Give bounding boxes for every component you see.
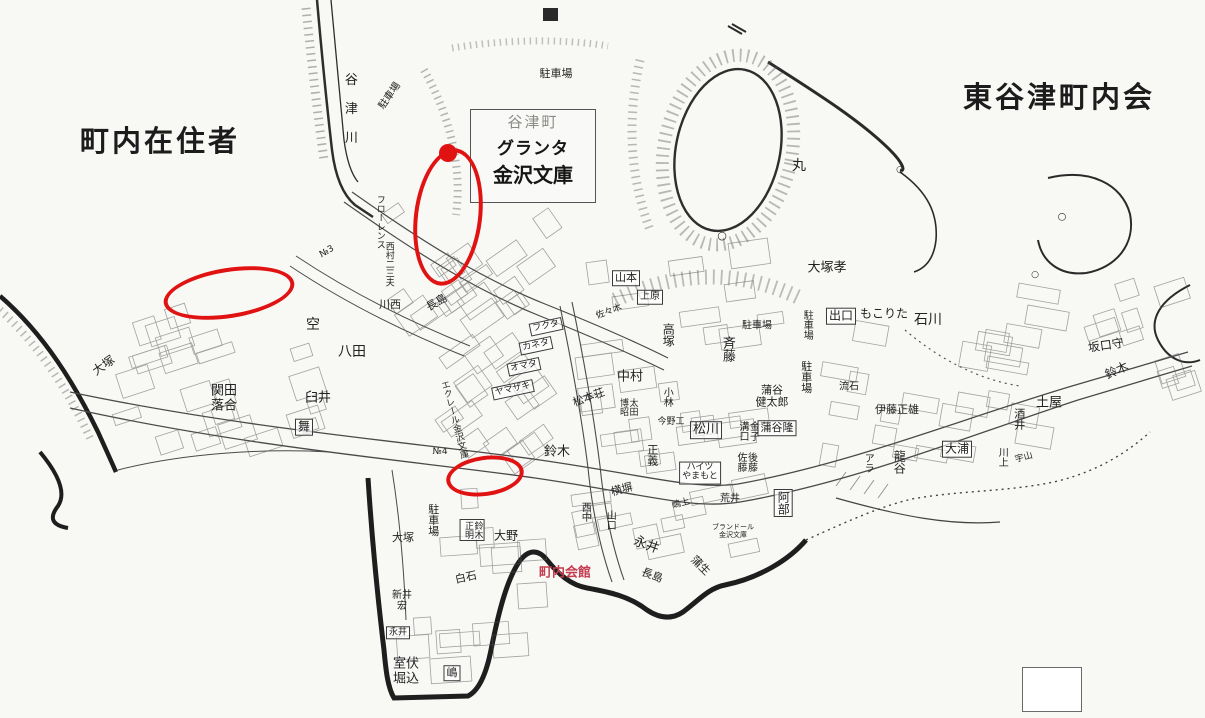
parcel-outline xyxy=(829,401,859,419)
landmark-name-line2: 金沢文庫 xyxy=(471,159,595,188)
parcel-outline xyxy=(1017,283,1061,304)
parcel-outline xyxy=(484,333,524,370)
parcel-outline xyxy=(290,343,313,361)
parcel-outline xyxy=(533,208,562,239)
parcel-outline xyxy=(494,276,524,304)
parcel-outline xyxy=(440,535,478,556)
parcel-outline xyxy=(1154,277,1190,307)
parcel-outline xyxy=(439,334,480,368)
parcel-outline xyxy=(461,488,479,509)
parcel-outline xyxy=(517,582,548,609)
parcel-outline xyxy=(155,327,194,356)
parcel-outline xyxy=(719,324,762,350)
parcel-outline xyxy=(396,634,430,659)
title-residents-in-town: 町内在住者 xyxy=(80,118,240,160)
parcel-outline xyxy=(757,311,784,326)
parcel-outline xyxy=(901,393,939,414)
parcel-outline xyxy=(196,342,235,364)
parcel-outline xyxy=(286,405,325,438)
parcel-outline xyxy=(413,617,431,635)
parcel-outline xyxy=(940,441,976,462)
parcel-outline xyxy=(191,427,221,451)
parcel-outline xyxy=(435,406,463,432)
parcel-outline xyxy=(517,248,556,284)
parcel-outline xyxy=(430,656,472,684)
parcel-outline xyxy=(475,528,494,549)
parcel-outline xyxy=(492,633,529,658)
parcel-outline xyxy=(633,524,661,549)
parcel-outline xyxy=(1004,324,1042,349)
parcel-outline xyxy=(112,407,141,426)
parcel-outline xyxy=(847,371,869,394)
parcel-outline xyxy=(410,295,450,330)
parcel-outline xyxy=(672,496,706,520)
parcel-outline xyxy=(129,346,168,369)
parcel-outline xyxy=(728,538,760,557)
parcel-outline xyxy=(629,417,652,442)
parcel-outline xyxy=(703,325,729,345)
parcel-outline xyxy=(496,290,525,319)
parcel-outline xyxy=(289,367,327,401)
parcel-outline xyxy=(307,398,326,414)
parcel-outline xyxy=(479,542,521,566)
parcel-outline xyxy=(1115,278,1140,301)
scanned-neighborhood-map: 町内在住者 東谷津町内会 谷津町 グランタ 金沢文庫 谷津川駐車場駐車場丸○○○… xyxy=(0,0,1205,718)
parcel-outline xyxy=(679,307,720,327)
parcel-outline xyxy=(441,258,472,290)
parcel-outline xyxy=(202,403,242,437)
parcel-outline xyxy=(454,365,493,402)
parcel-outline xyxy=(716,419,756,448)
landmark-name-line1: グランタ xyxy=(471,134,595,159)
parcel-outline xyxy=(852,320,889,346)
legend-box xyxy=(1022,667,1082,712)
parcel-outline xyxy=(1025,305,1070,331)
parcel-outline xyxy=(728,238,771,269)
parcel-outline xyxy=(441,280,468,306)
parcel-outline xyxy=(731,474,768,501)
parcel-outline xyxy=(689,484,733,506)
district-label: 谷津町 xyxy=(471,111,595,132)
parcel-outline xyxy=(1121,308,1143,333)
parcel-outline xyxy=(155,430,183,455)
parcel-outline xyxy=(486,240,527,277)
granta-kanazawa-bunko: 谷津町 グランタ 金沢文庫 xyxy=(470,109,596,203)
parcel-outline xyxy=(986,356,1029,375)
parcel-outline xyxy=(1173,370,1196,391)
parcel-outline xyxy=(575,353,614,380)
parcel-outline xyxy=(502,432,548,474)
title-higashi-yatsu-association: 東谷津町内会 xyxy=(963,74,1155,116)
parcel-outline xyxy=(1084,317,1119,341)
parcel-outline xyxy=(460,298,504,338)
parcel-outline xyxy=(645,534,684,560)
parcel-outline xyxy=(618,366,657,392)
parcel-outline xyxy=(586,260,609,285)
parcel-outline xyxy=(600,430,639,447)
parcel-outline xyxy=(661,515,685,532)
parcel-outline xyxy=(880,408,901,424)
parcel-outline xyxy=(455,374,488,408)
parcel-outline xyxy=(509,365,549,404)
parcel-outline xyxy=(702,416,743,442)
parcel-outline xyxy=(578,384,616,412)
parcel-outline xyxy=(437,256,465,284)
parcel-outline xyxy=(164,303,190,329)
parcel-outline xyxy=(597,513,632,531)
parcel-outline xyxy=(116,365,155,399)
parcel-outline xyxy=(180,380,216,412)
parcel-outline xyxy=(658,381,679,402)
parcel-outline xyxy=(437,290,465,316)
parcel-outline xyxy=(441,401,482,437)
parcel-outline xyxy=(639,449,661,467)
parcel-outline xyxy=(464,336,504,374)
parcel-outline xyxy=(729,408,770,429)
parcel-outline xyxy=(724,281,756,302)
parcel-outline xyxy=(244,428,283,457)
